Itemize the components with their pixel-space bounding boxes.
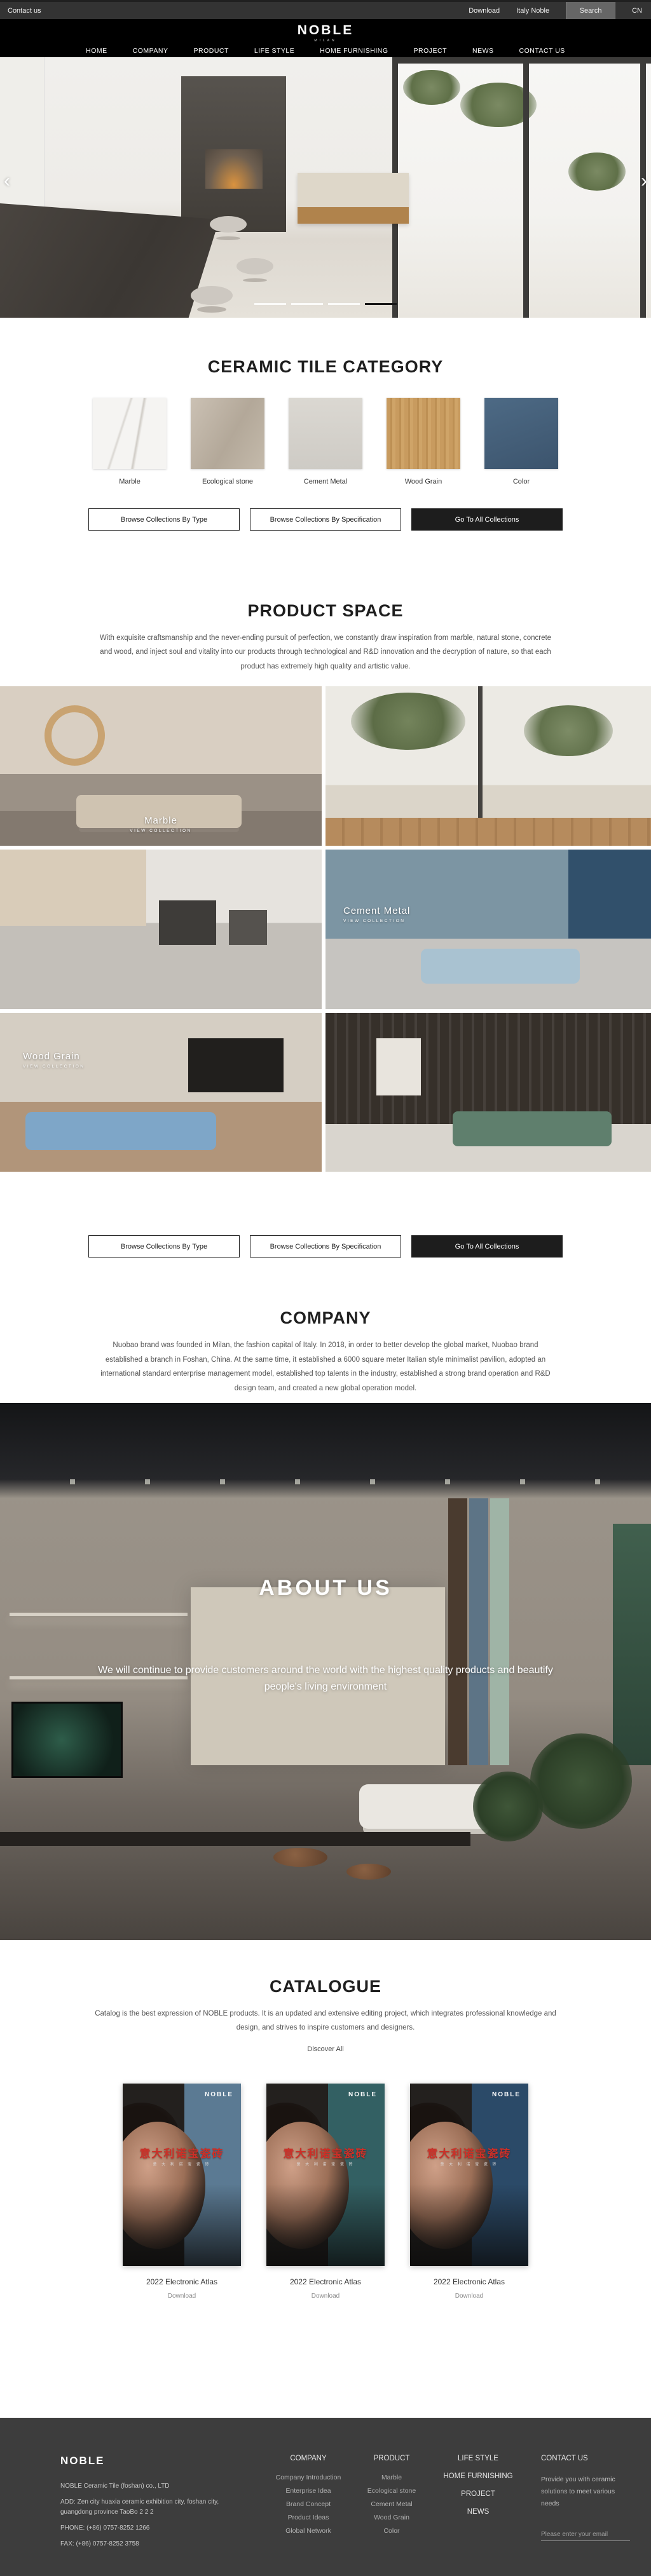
carousel-next-icon[interactable]: › [641,172,647,191]
catalogue-cover[interactable]: NOBLE 意大利诺宝瓷砖 意 大 利 诺 宝 瓷 砖 [266,2084,385,2266]
footer-link-cement-metal[interactable]: Cement Metal [357,2500,427,2508]
nav-life-style[interactable]: LIFE STYLE [254,47,294,55]
cover-shade [123,2184,241,2266]
hero-image-glass-doors [394,57,651,318]
decor-display-stand [159,900,216,945]
footer-link-enterprise-idea[interactable]: Enterprise Idea [264,2487,353,2495]
space-cell-showroom[interactable] [0,850,322,1009]
download-link[interactable]: Download [469,7,500,15]
color-swatch [484,398,558,469]
footer-link-product-ideas[interactable]: Product Ideas [264,2514,353,2521]
cell-label-wood-grain: Wood Grain VIEW COLLECTION [23,1051,85,1069]
hero-window-frame [394,57,651,64]
product-space-paragraph: With exquisite craftsmanship and the nev… [93,631,558,674]
about-us-title: ABOUT US [0,1576,651,1601]
company-title: COMPANY [0,1308,651,1328]
carousel-dot-1[interactable] [254,303,286,305]
footer-brand-logo: NOBLE [60,2455,251,2467]
decor-shelf [10,1613,188,1616]
site-footer: NOBLE NOBLE Ceramic Tile (foshan) co., L… [0,2418,651,2576]
catalogue-cover[interactable]: NOBLE 意大利诺宝瓷砖 意 大 利 诺 宝 瓷 砖 [410,2084,528,2266]
space-cell-cement-metal[interactable]: Cement Metal VIEW COLLECTION [325,850,651,1009]
hero-image-wall [0,57,45,219]
decor-display-stand [229,910,267,945]
tile-label: Marble [93,478,167,485]
catalogue-cover[interactable]: NOBLE 意大利诺宝瓷砖 意 大 利 诺 宝 瓷 砖 [123,2084,241,2266]
decor-deck [325,818,651,846]
footer-contact-text: Provide you with ceramic solutions to me… [541,2474,624,2510]
cell-label-marble: Marble VIEW COLLECTION [0,815,322,833]
product-space-buttons-row: Browse Collections By Type Browse Collec… [0,1235,651,1257]
nav-news[interactable]: NEWS [472,47,494,55]
nav-contact-us[interactable]: CONTACT US [519,47,565,55]
footer-link-home-furnishing[interactable]: HOME FURNISHING [430,2472,526,2480]
browse-by-specification-button[interactable]: Browse Collections By Specification [250,508,401,531]
decor-gold-ring [45,705,105,766]
category-section-title: CERAMIC TILE CATEGORY [0,357,651,377]
marble-swatch [93,398,167,469]
footer-phone: PHONE: (+86) 0757-8252 1266 [60,2523,251,2533]
catalogue-title: CATALOGUE [0,1977,651,1996]
cover-cn-title: 意大利诺宝瓷砖 [266,2145,385,2160]
product-space-section: PRODUCT SPACE With exquisite craftsmansh… [0,589,651,1257]
decor-artwork [376,1038,421,1095]
footer-link-global-network[interactable]: Global Network [264,2527,353,2535]
carousel-indicators [0,303,651,305]
decor-coffee-table [273,1848,327,1867]
tile-label: Ecological stone [191,478,264,485]
company-section: COMPANY Nuobao brand was founded in Mila… [0,1257,651,1403]
discover-all-link[interactable]: Discover All [0,2045,651,2053]
catalogue-download-link[interactable]: Download [266,2293,385,2300]
decor-tv-screen [11,1702,123,1778]
footer-link-news[interactable]: NEWS [430,2508,526,2516]
decor-plant [351,693,465,750]
decor-plant [473,1772,543,1841]
cover-shade [410,2184,528,2266]
hero-image-stool [191,286,233,305]
catalogue-download-link[interactable]: Download [123,2293,241,2300]
hero-image-stool [210,216,247,233]
nav-product[interactable]: PRODUCT [193,47,228,55]
footer-address: ADD: Zen city huaxia ceramic exhibition … [60,2497,251,2518]
decor-plant [524,705,613,756]
carousel-dot-3[interactable] [328,303,360,305]
footer-fax: FAX: (+86) 0757-8252 3758 [60,2539,251,2549]
nav-project[interactable]: PROJECT [414,47,448,55]
product-space-grid: Marble VIEW COLLECTION Cement Metal VIEW… [0,686,651,1172]
tile-category-ecological-stone[interactable]: Ecological stone [191,398,264,485]
nav-company[interactable]: COMPANY [133,47,168,55]
nav-home-furnishing[interactable]: HOME FURNISHING [320,47,388,55]
footer-company-heading: COMPANY [264,2455,353,2462]
language-toggle[interactable]: CN [632,7,642,15]
about-us-paragraph: We will continue to provide customers ar… [0,1662,651,1696]
brand-logo[interactable]: NOBLE [0,23,651,38]
decor-wood-slats [325,1013,651,1124]
cover-cn-title: 意大利诺宝瓷砖 [410,2145,528,2160]
go-to-all-collections-button[interactable]: Go To All Collections [411,508,563,531]
about-us-banner: ABOUT US We will continue to provide cus… [0,1403,651,1940]
search-button[interactable]: Search [566,2,615,19]
ceramic-tile-category-section: CERAMIC TILE CATEGORY Marble Ecological … [0,318,651,589]
footer-product-heading: PRODUCT [357,2455,427,2462]
cover-cn-title: 意大利诺宝瓷砖 [123,2145,241,2160]
decor-tv [188,1038,284,1092]
cell-label-cement-metal: Cement Metal VIEW COLLECTION [343,905,410,923]
decor-display [613,1524,651,1765]
catalogue-covers-row: NOBLE 意大利诺宝瓷砖 意 大 利 诺 宝 瓷 砖 2022 Electro… [0,2084,651,2300]
contact-us-link[interactable]: Contact us [0,7,41,15]
space-cell-marble[interactable]: Marble VIEW COLLECTION [0,686,322,846]
hero-carousel: ‹ › [0,57,651,318]
hero-image-fireplace [181,76,286,232]
hero-image-stone-counter [0,203,219,318]
product-space-title: PRODUCT SPACE [0,601,651,621]
catalogue-paragraph: Catalog is the best expression of NOBLE … [93,2007,558,2035]
cover-cn-subtitle: 意 大 利 诺 宝 瓷 砖 [266,2161,385,2167]
decor-tile-slab [490,1498,509,1765]
cover-cn-subtitle: 意 大 利 诺 宝 瓷 砖 [123,2161,241,2167]
browse-by-type-button[interactable]: Browse Collections By Type [88,1235,240,1257]
cover-brand-logo: NOBLE [348,2091,377,2098]
carousel-dot-4-active[interactable] [365,303,397,305]
tile-category-cement-metal[interactable]: Cement Metal [289,398,362,485]
footer-link-company-introduction[interactable]: Company Introduction [264,2474,353,2481]
tile-label: Cement Metal [289,478,362,485]
tile-label: Wood Grain [387,478,460,485]
space-cell-wood-grain[interactable]: Wood Grain VIEW COLLECTION [0,1013,322,1172]
catalogue-item-2: NOBLE 意大利诺宝瓷砖 意 大 利 诺 宝 瓷 砖 2022 Electro… [266,2084,385,2300]
tile-category-color[interactable]: Color [484,398,558,485]
footer-company-info: NOBLE NOBLE Ceramic Tile (foshan) co., L… [60,2455,251,2576]
site-header: NOBLE MILAN HOME COMPANY PRODUCT LIFE ST… [0,19,651,57]
decor-tile-slab [469,1498,488,1765]
main-nav: HOME COMPANY PRODUCT LIFE STYLE HOME FUR… [0,47,651,55]
catalogue-item-title: 2022 Electronic Atlas [123,2277,241,2286]
footer-company-line: NOBLE Ceramic Tile (foshan) co., LTD [60,2481,251,2491]
hero-image-stool [236,258,273,275]
footer-link-color[interactable]: Color [357,2527,427,2535]
footer-contact-heading: CONTACT US [541,2455,649,2462]
footer-link-project[interactable]: PROJECT [430,2490,526,2498]
catalogue-section: CATALOGUE Catalog is the best expression… [0,1940,651,2418]
catalogue-item-3: NOBLE 意大利诺宝瓷砖 意 大 利 诺 宝 瓷 砖 2022 Electro… [410,2084,528,2300]
browse-by-specification-button[interactable]: Browse Collections By Specification [250,1235,401,1257]
decor-plant [530,1733,632,1829]
catalogue-item-title: 2022 Electronic Atlas [410,2277,528,2286]
decor-spotlights [0,1479,651,1484]
hero-image-bench-wood [298,207,409,224]
italy-noble-link[interactable]: Italy Noble [516,7,549,15]
decor-sofa [453,1111,612,1146]
decor-tile-slab [448,1498,467,1765]
nav-home[interactable]: HOME [86,47,107,55]
footer-link-wood-grain[interactable]: Wood Grain [357,2514,427,2521]
cement-metal-swatch [289,398,362,469]
space-cell-terrace[interactable] [325,686,651,846]
footer-column-sections: LIFE STYLE HOME FURNISHING PROJECT NEWS [430,2455,526,2576]
tile-category-marble[interactable]: Marble [93,398,167,485]
footer-link-life-style[interactable]: LIFE STYLE [430,2455,526,2462]
decor-media-stand [0,1832,470,1846]
ecological-stone-swatch [191,398,264,469]
tile-label: Color [484,478,558,485]
browse-by-type-button[interactable]: Browse Collections By Type [88,508,240,531]
cover-cn-subtitle: 意 大 利 诺 宝 瓷 砖 [410,2161,528,2167]
footer-link-marble[interactable]: Marble [357,2474,427,2481]
cover-brand-logo: NOBLE [205,2091,233,2098]
footer-link-ecological-stone[interactable]: Ecological stone [357,2487,427,2495]
category-buttons-row: Browse Collections By Type Browse Collec… [0,508,651,531]
space-cell-slat-wall[interactable] [325,1013,651,1172]
catalogue-item-1: NOBLE 意大利诺宝瓷砖 意 大 利 诺 宝 瓷 砖 2022 Electro… [123,2084,241,2300]
catalogue-item-title: 2022 Electronic Atlas [266,2277,385,2286]
go-to-all-collections-button[interactable]: Go To All Collections [411,1235,563,1257]
decor-coffee-table [346,1864,391,1880]
catalogue-download-link[interactable]: Download [410,2293,528,2300]
hero-window-frame [523,57,529,318]
cover-brand-logo: NOBLE [492,2091,521,2098]
footer-link-brand-concept[interactable]: Brand Concept [264,2500,353,2508]
wood-grain-swatch [387,398,460,469]
footer-column-product: PRODUCT Marble Ecological stone Cement M… [357,2455,427,2576]
carousel-dot-2[interactable] [291,303,323,305]
company-paragraph: Nuobao brand was founded in Milan, the f… [93,1338,558,1395]
email-input[interactable] [541,2528,630,2541]
cover-shade [266,2184,385,2266]
carousel-prev-icon[interactable]: ‹ [4,172,10,191]
tile-category-wood-grain[interactable]: Wood Grain [387,398,460,485]
decor-sofa [25,1112,216,1150]
decor-accent-wall [568,850,651,939]
decor-wall-panel [0,850,146,926]
brand-tagline: MILAN [0,39,651,43]
tile-swatch-row: Marble Ecological stone Cement Metal Woo… [0,398,651,485]
footer-column-company: COMPANY Company Introduction Enterprise … [264,2455,353,2576]
decor-sofa [421,949,580,984]
footer-contact-block: CONTACT US Provide you with ceramic solu… [541,2455,649,2576]
top-utility-bar: Contact us Download Italy Noble Search C… [0,0,651,19]
